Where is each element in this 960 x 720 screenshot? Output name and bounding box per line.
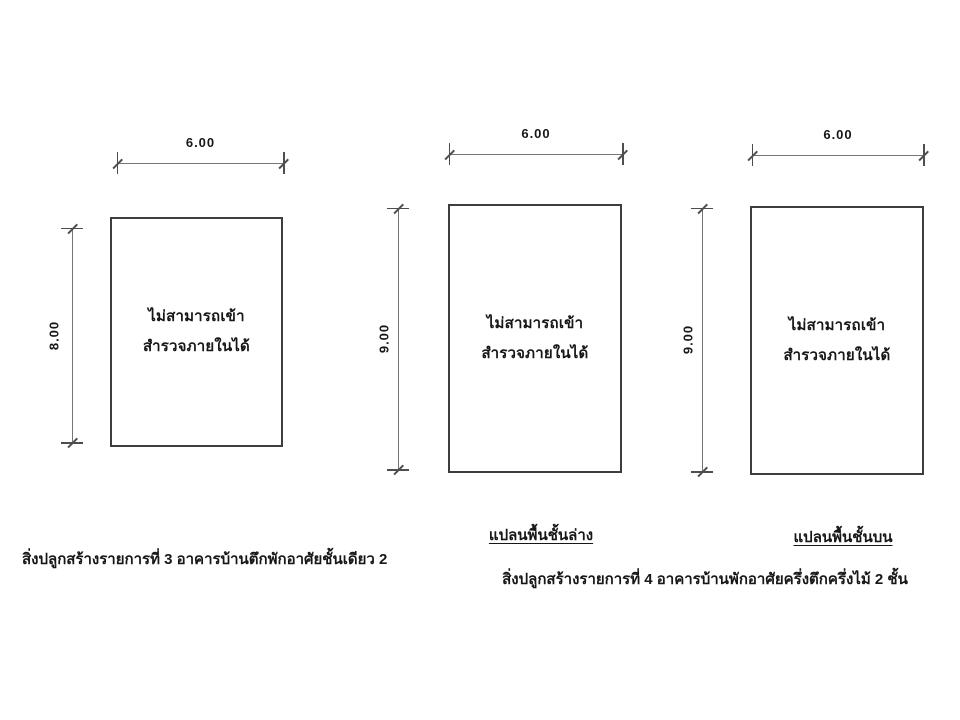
building-item-3-caption: สิ่งปลูกสร้างรายการที่ 3 อาคารบ้านตึกพัก… bbox=[22, 547, 387, 571]
dimension-line bbox=[117, 163, 284, 164]
upper-floor-plan-label: แปลนพื้นชั้นบน bbox=[743, 525, 943, 549]
survey-note-line2: สำรวจภายในได้ bbox=[481, 339, 588, 369]
survey-note-line1: ไม่สามารถเข้า bbox=[148, 302, 244, 332]
dimension-line bbox=[398, 208, 399, 470]
scanned-floor-plan-page: 6.00 8.00 ไม่สามารถเข้า สำรวจภายในได้ สิ… bbox=[0, 0, 960, 720]
width-dimension-line: 6.00 bbox=[449, 142, 623, 166]
survey-note-line2: สำรวจภายในได้ bbox=[783, 341, 890, 371]
building-item-4-caption: สิ่งปลูกสร้างรายการที่ 4 อาคารบ้านพักอาศ… bbox=[500, 567, 910, 591]
width-dimension-value: 6.00 bbox=[117, 135, 284, 150]
survey-note-line2: สำรวจภายในได้ bbox=[143, 332, 250, 362]
height-dimension-line bbox=[60, 228, 84, 443]
height-dimension-value: 8.00 bbox=[47, 306, 62, 366]
dimension-line bbox=[72, 228, 73, 443]
height-dimension-value: 9.00 bbox=[377, 309, 392, 369]
survey-note-line1: ไม่สามารถเข้า bbox=[789, 311, 885, 341]
survey-note-line1: ไม่สามารถเข้า bbox=[487, 309, 583, 339]
width-dimension-line: 6.00 bbox=[752, 143, 924, 167]
plan-outline-rectangle: ไม่สามารถเข้า สำรวจภายในได้ bbox=[448, 204, 622, 473]
plan-outline-rectangle: ไม่สามารถเข้า สำรวจภายในได้ bbox=[750, 206, 924, 475]
plan-outline-rectangle: ไม่สามารถเข้า สำรวจภายในได้ bbox=[110, 217, 283, 447]
dimension-line bbox=[702, 208, 703, 472]
width-dimension-value: 6.00 bbox=[752, 127, 924, 142]
dimension-line bbox=[449, 154, 623, 155]
lower-floor-plan-label: แปลนพื้นชั้นล่าง bbox=[441, 523, 641, 547]
width-dimension-value: 6.00 bbox=[449, 126, 623, 141]
width-dimension-line: 6.00 bbox=[117, 151, 284, 175]
dimension-line bbox=[752, 155, 924, 156]
height-dimension-value: 9.00 bbox=[681, 310, 696, 370]
